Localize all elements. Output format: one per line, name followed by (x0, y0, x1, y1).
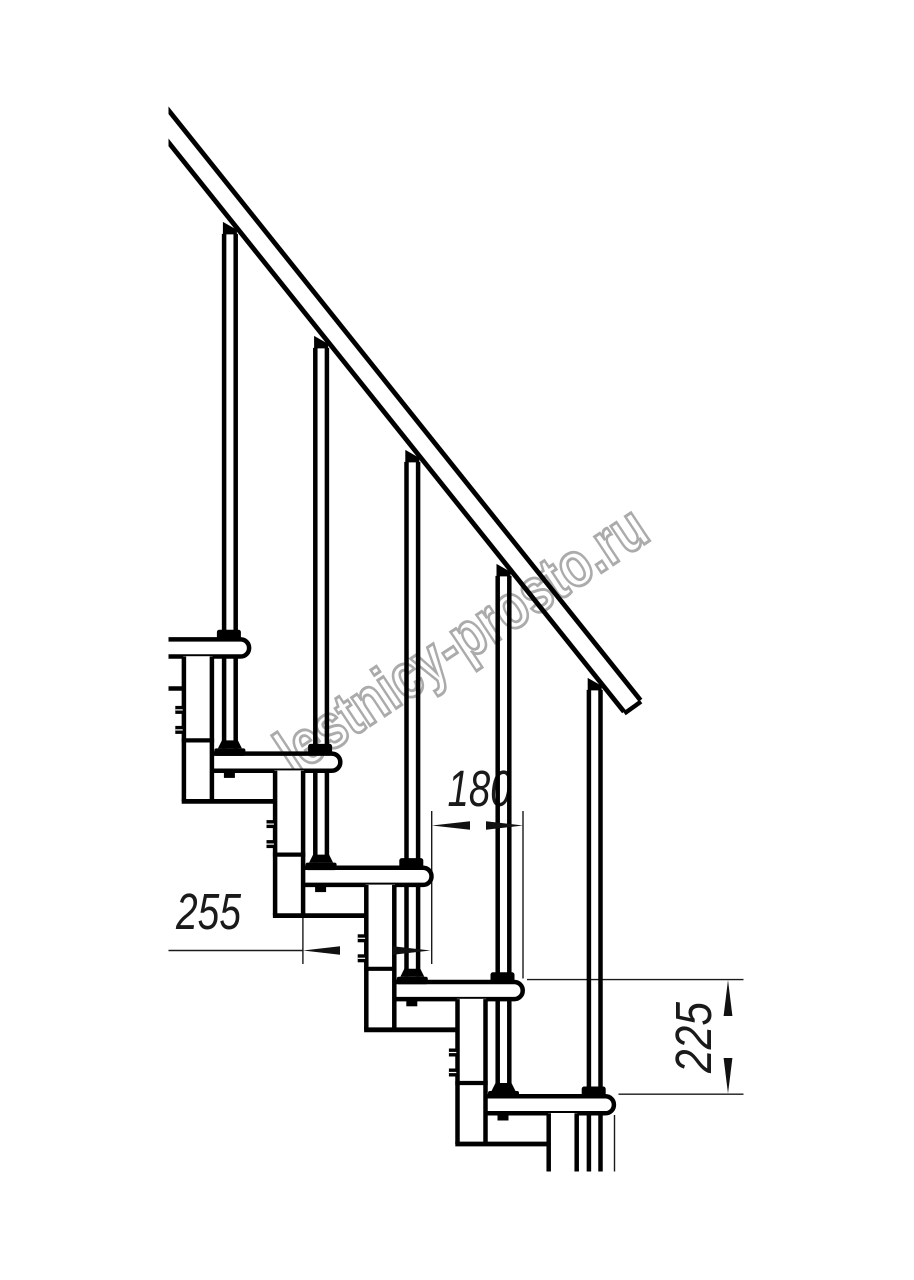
svg-text:180: 180 (448, 760, 512, 817)
svg-text:225: 225 (665, 1001, 722, 1073)
svg-text:255: 255 (175, 883, 241, 940)
